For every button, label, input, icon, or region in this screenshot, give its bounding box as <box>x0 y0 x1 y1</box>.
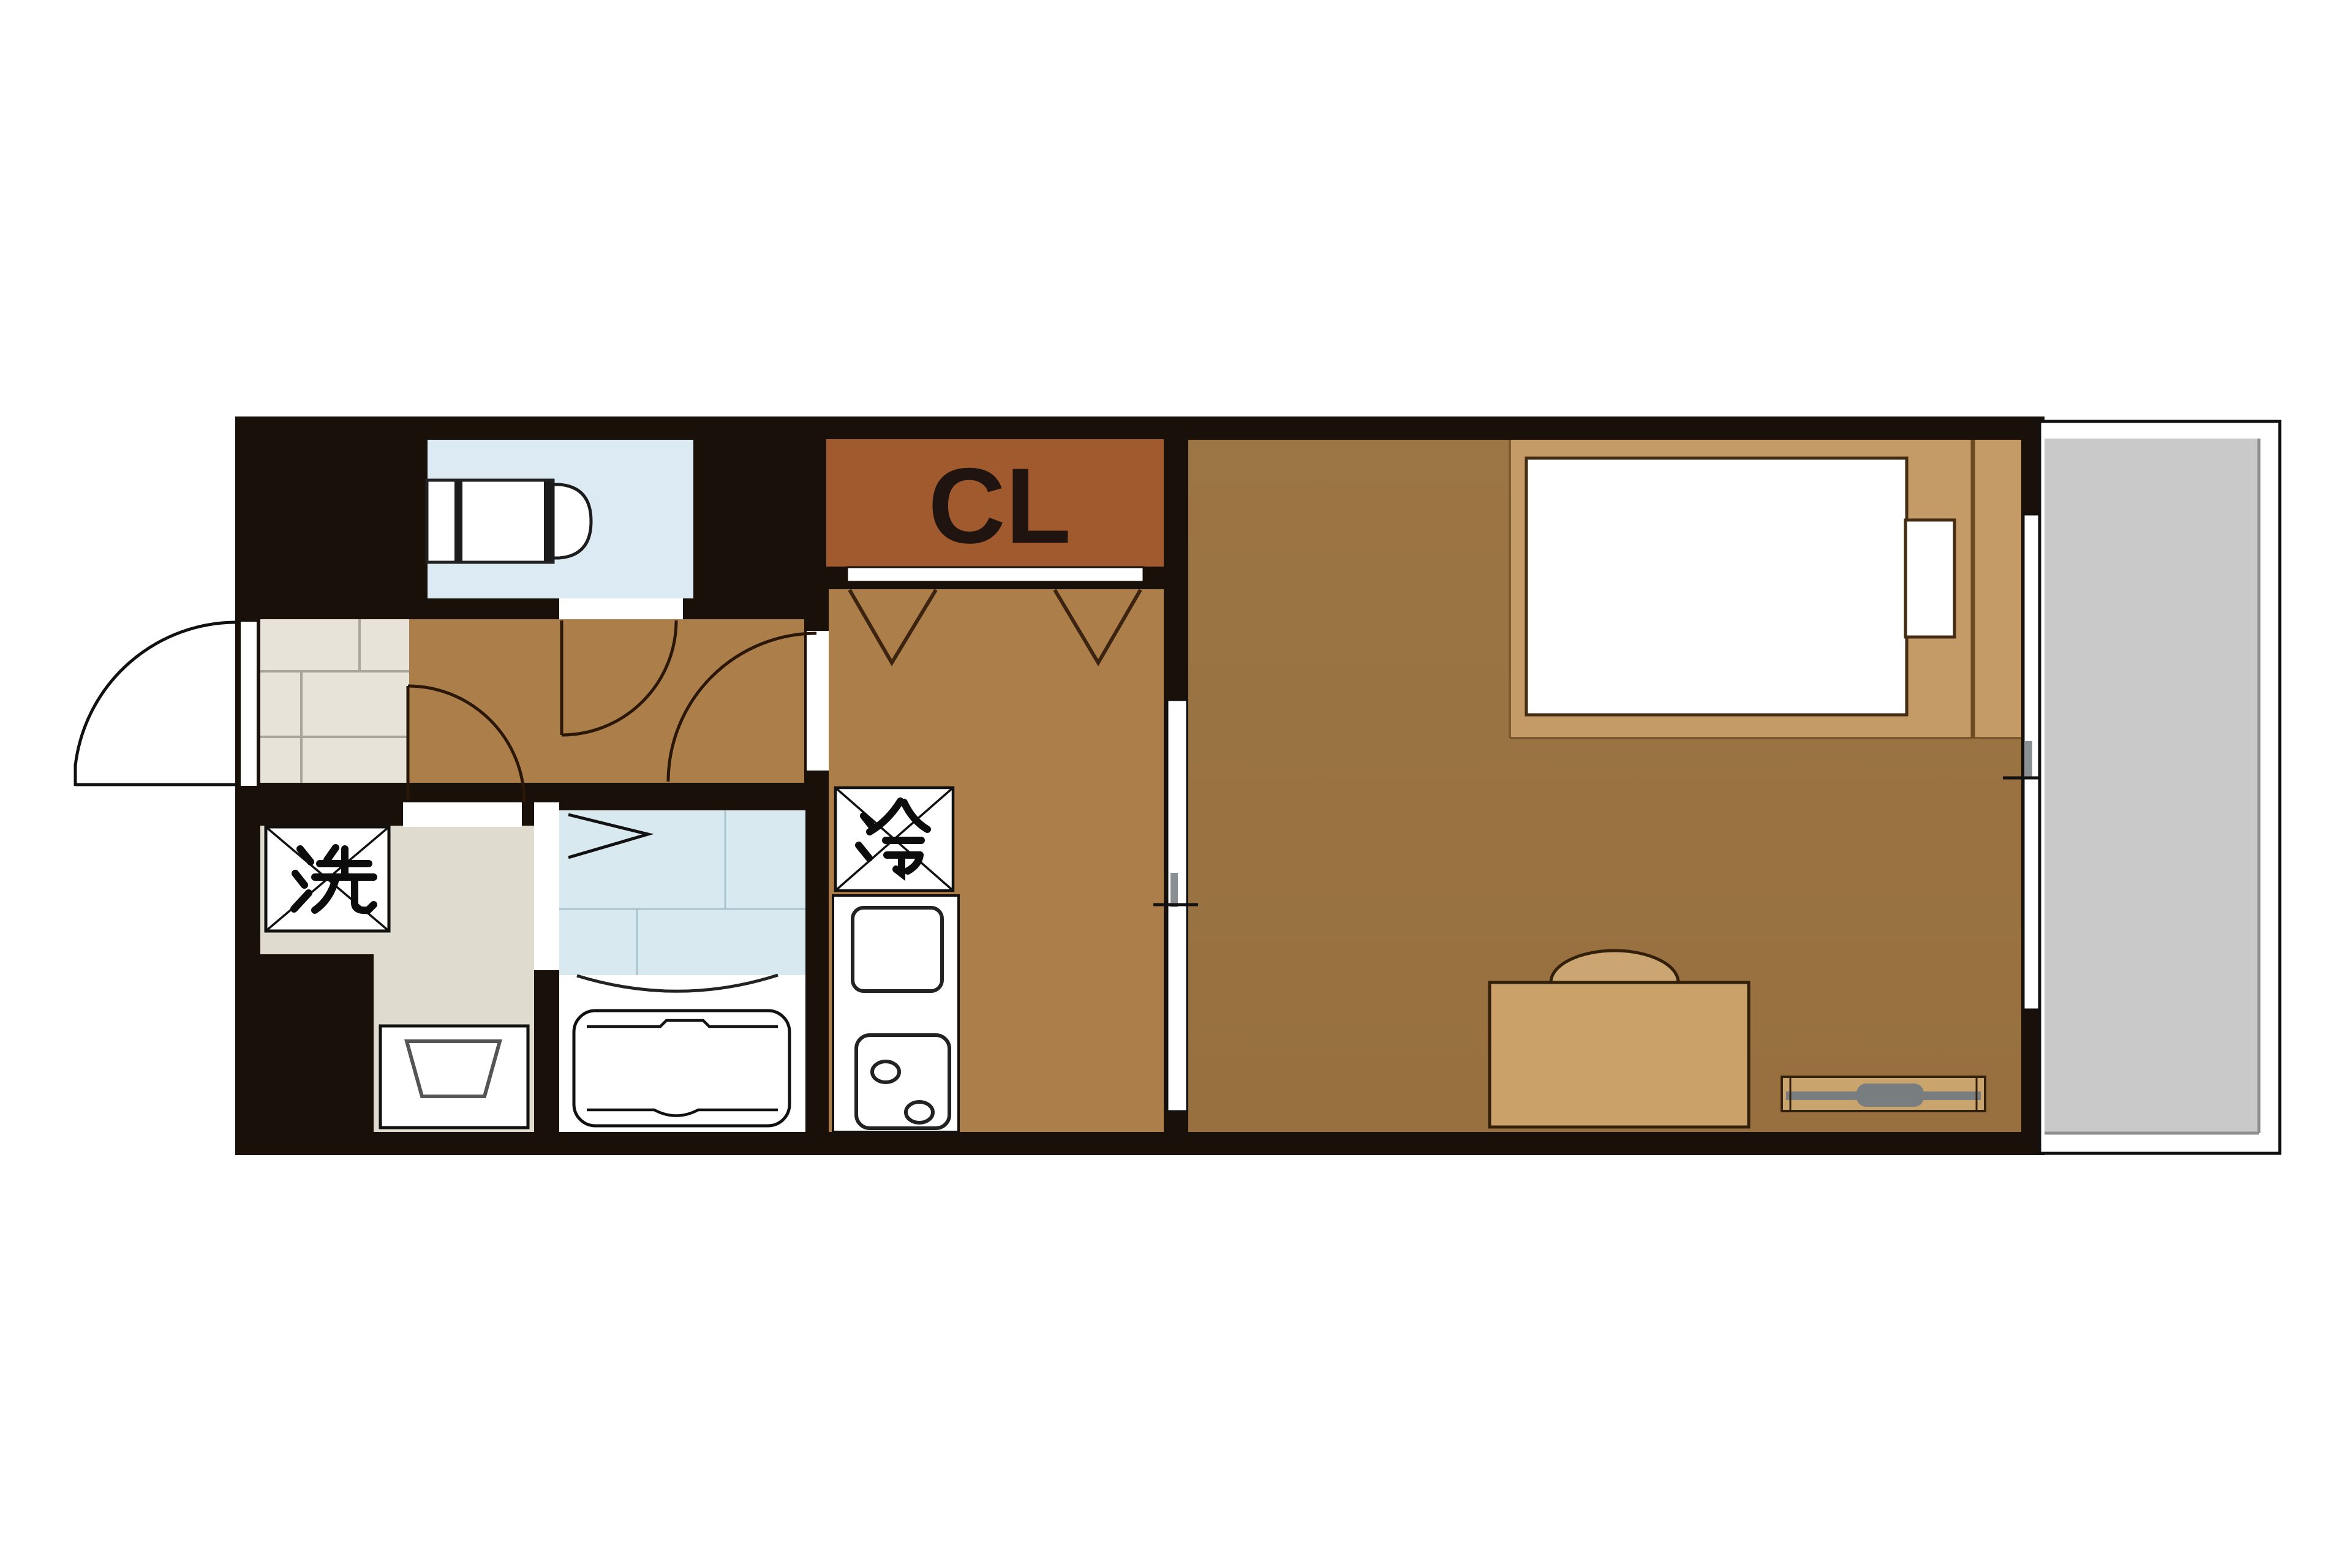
svg-text:CL: CL <box>928 447 1071 566</box>
